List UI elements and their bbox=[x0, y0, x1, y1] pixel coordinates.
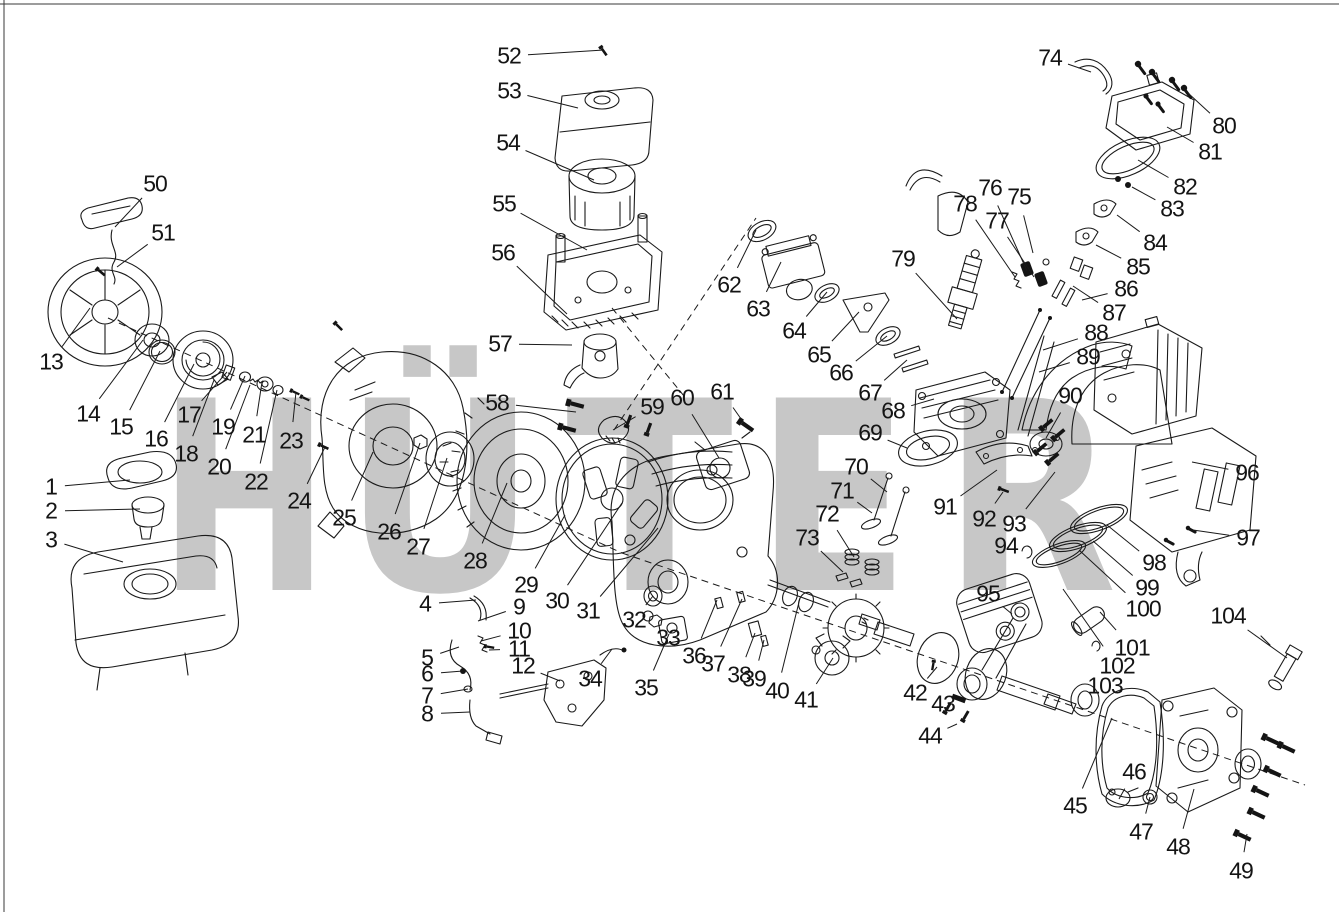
part-label-64: 64 bbox=[782, 320, 806, 343]
part-label-54: 54 bbox=[496, 132, 520, 155]
part-label-69: 69 bbox=[858, 422, 882, 445]
part-label-74: 74 bbox=[1038, 47, 1062, 70]
part-label-24: 24 bbox=[287, 490, 311, 513]
part-label-16: 16 bbox=[144, 428, 168, 451]
part-label-97: 97 bbox=[1236, 527, 1260, 550]
part-label-44: 44 bbox=[918, 725, 942, 748]
part-label-96: 96 bbox=[1235, 462, 1259, 485]
part-label-70: 70 bbox=[844, 456, 868, 479]
part-label-98: 98 bbox=[1142, 552, 1166, 575]
part-label-84: 84 bbox=[1143, 232, 1167, 255]
part-label-81: 81 bbox=[1198, 141, 1222, 164]
part-label-37: 37 bbox=[701, 653, 725, 676]
part-label-43: 43 bbox=[931, 693, 955, 716]
part-label-13: 13 bbox=[39, 351, 63, 374]
part-label-92: 92 bbox=[972, 508, 996, 531]
part-label-100: 100 bbox=[1125, 598, 1160, 621]
part-label-39: 39 bbox=[742, 668, 766, 691]
part-label-49: 49 bbox=[1229, 860, 1253, 883]
part-label-31: 31 bbox=[576, 600, 600, 623]
part-label-25: 25 bbox=[332, 507, 356, 530]
part-label-3: 3 bbox=[45, 529, 57, 552]
part-label-83: 83 bbox=[1160, 198, 1184, 221]
part-label-63: 63 bbox=[746, 298, 770, 321]
part-label-62: 62 bbox=[717, 274, 741, 297]
part-label-71: 71 bbox=[830, 480, 854, 503]
part-label-46: 46 bbox=[1122, 761, 1146, 784]
part-label-86: 86 bbox=[1114, 278, 1138, 301]
part-label-18: 18 bbox=[174, 443, 198, 466]
part-label-45: 45 bbox=[1063, 795, 1087, 818]
part-label-55: 55 bbox=[492, 193, 516, 216]
part-label-22: 22 bbox=[244, 471, 268, 494]
part-label-66: 66 bbox=[829, 362, 853, 385]
part-label-48: 48 bbox=[1166, 836, 1190, 859]
part-label-32: 32 bbox=[622, 609, 646, 632]
part-label-95: 95 bbox=[976, 583, 1000, 606]
part-label-59: 59 bbox=[640, 396, 664, 419]
part-label-78: 78 bbox=[953, 193, 977, 216]
part-label-53: 53 bbox=[497, 80, 521, 103]
part-label-51: 51 bbox=[151, 222, 175, 245]
part-label-58: 58 bbox=[485, 392, 509, 415]
part-label-23: 23 bbox=[279, 430, 303, 453]
part-label-14: 14 bbox=[76, 403, 100, 426]
part-label-61: 61 bbox=[710, 381, 734, 404]
part-label-30: 30 bbox=[545, 590, 569, 613]
part-label-41: 41 bbox=[794, 689, 818, 712]
part-label-50: 50 bbox=[143, 173, 167, 196]
part-label-28: 28 bbox=[463, 550, 487, 573]
part-label-88: 88 bbox=[1084, 322, 1108, 345]
part-label-94: 94 bbox=[994, 535, 1018, 558]
part-label-8: 8 bbox=[421, 703, 433, 726]
part-label-15: 15 bbox=[109, 416, 133, 439]
part-label-2: 2 bbox=[45, 500, 57, 523]
part-label-72: 72 bbox=[815, 503, 839, 526]
part-label-57: 57 bbox=[488, 333, 512, 356]
part-label-26: 26 bbox=[377, 521, 401, 544]
part-label-20: 20 bbox=[207, 456, 231, 479]
part-label-35: 35 bbox=[634, 677, 658, 700]
part-label-42: 42 bbox=[903, 682, 927, 705]
part-label-60: 60 bbox=[670, 387, 694, 410]
part-label-56: 56 bbox=[491, 242, 515, 265]
part-label-40: 40 bbox=[765, 680, 789, 703]
part-label-52: 52 bbox=[497, 45, 521, 68]
part-label-67: 67 bbox=[858, 382, 882, 405]
part-label-29: 29 bbox=[514, 574, 538, 597]
part-label-1: 1 bbox=[45, 476, 57, 499]
part-label-73: 73 bbox=[795, 527, 819, 550]
part-label-89: 89 bbox=[1076, 346, 1100, 369]
part-label-103: 103 bbox=[1087, 675, 1122, 698]
part-label-80: 80 bbox=[1212, 115, 1236, 138]
part-label-27: 27 bbox=[406, 536, 430, 559]
part-label-34: 34 bbox=[578, 668, 602, 691]
part-label-4: 4 bbox=[419, 593, 431, 616]
part-label-79: 79 bbox=[891, 248, 915, 271]
exploded-diagram-page: HÜTER bbox=[0, 0, 1339, 912]
part-label-21: 21 bbox=[242, 424, 266, 447]
part-label-104: 104 bbox=[1210, 605, 1245, 628]
part-label-76: 76 bbox=[978, 177, 1002, 200]
part-label-47: 47 bbox=[1129, 821, 1153, 844]
part-label-65: 65 bbox=[807, 344, 831, 367]
part-label-17: 17 bbox=[177, 404, 201, 427]
part-label-68: 68 bbox=[881, 400, 905, 423]
part-label-90: 90 bbox=[1058, 385, 1082, 408]
part-label-12: 12 bbox=[511, 655, 535, 678]
part-label-75: 75 bbox=[1007, 186, 1031, 209]
part-label-9: 9 bbox=[513, 596, 525, 619]
part-label-19: 19 bbox=[211, 416, 235, 439]
part-label-77: 77 bbox=[985, 210, 1009, 233]
part-labels: 1234567891011121314151617181920212223242… bbox=[0, 0, 1339, 912]
part-label-91: 91 bbox=[933, 496, 957, 519]
part-label-33: 33 bbox=[656, 627, 680, 650]
